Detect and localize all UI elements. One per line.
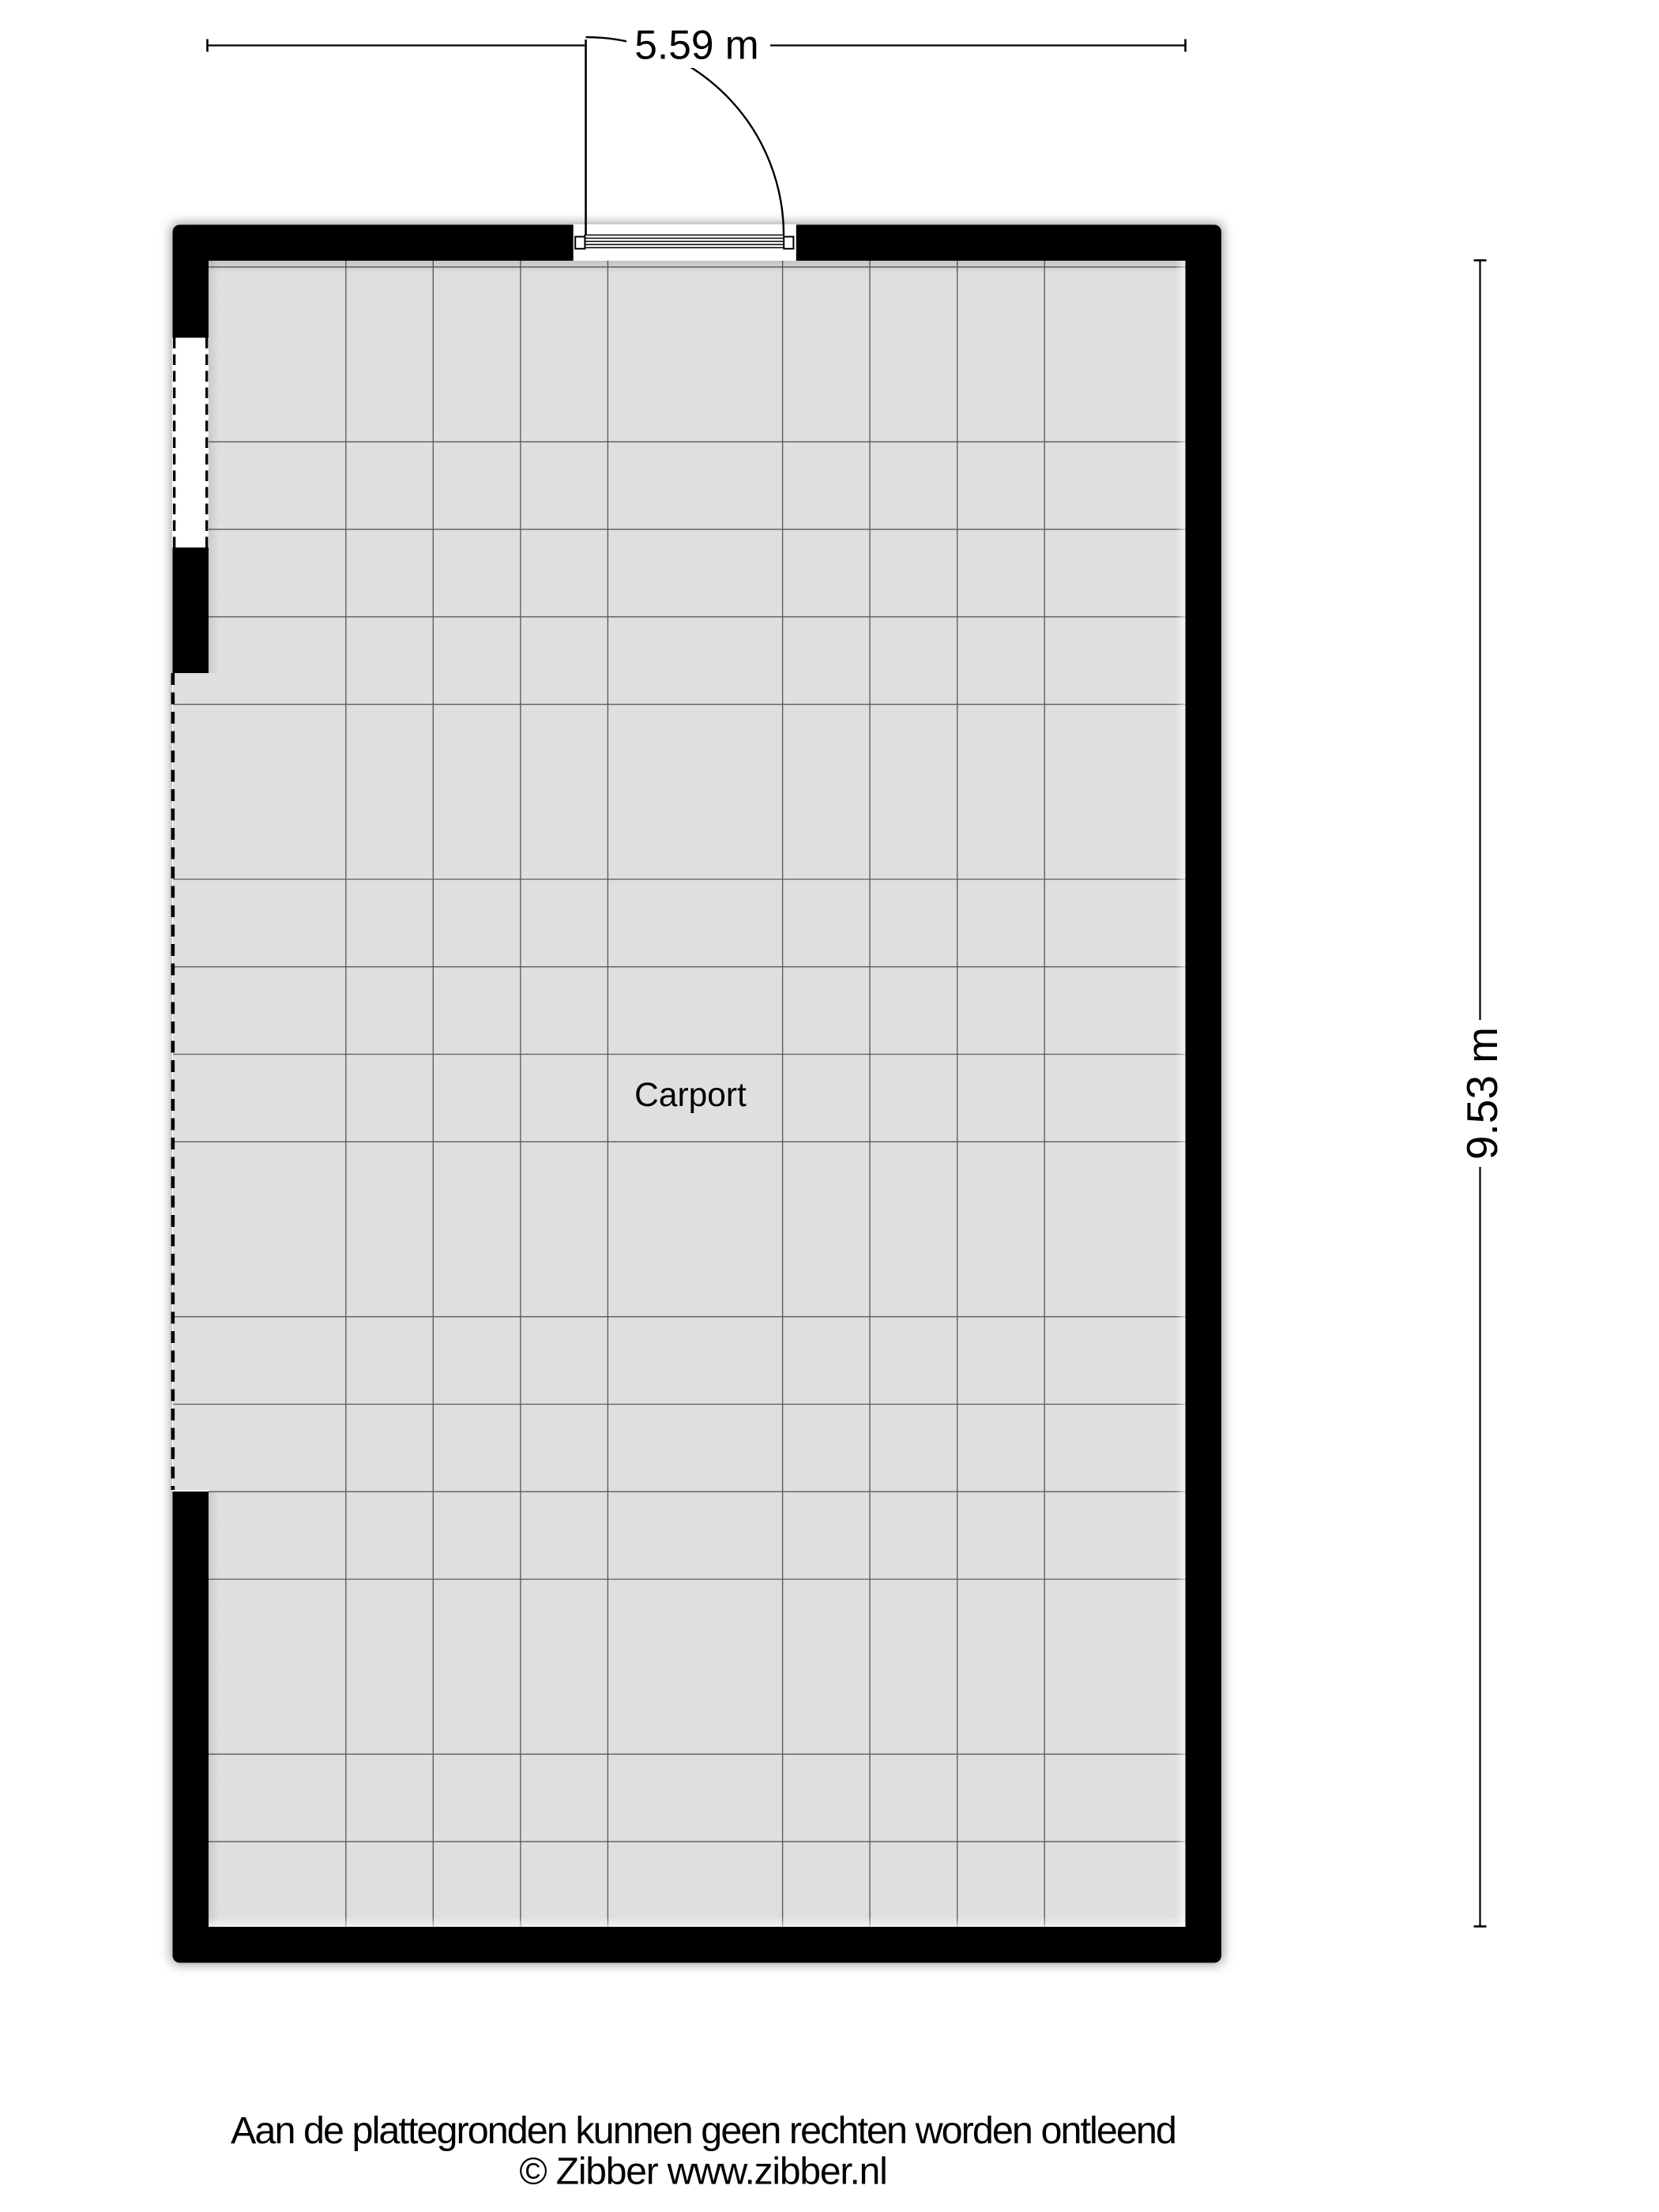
svg-text:Aan de plattegronden kunnen ge: Aan de plattegronden kunnen geen rechten… [231, 2109, 1176, 2152]
svg-text:5.59 m: 5.59 m [634, 22, 758, 68]
svg-text:Carport: Carport [634, 1077, 747, 1114]
svg-text:© Zibber www.zibber.nl: © Zibber www.zibber.nl [519, 2151, 886, 2193]
svg-text:9.53 m: 9.53 m [1458, 1027, 1507, 1160]
